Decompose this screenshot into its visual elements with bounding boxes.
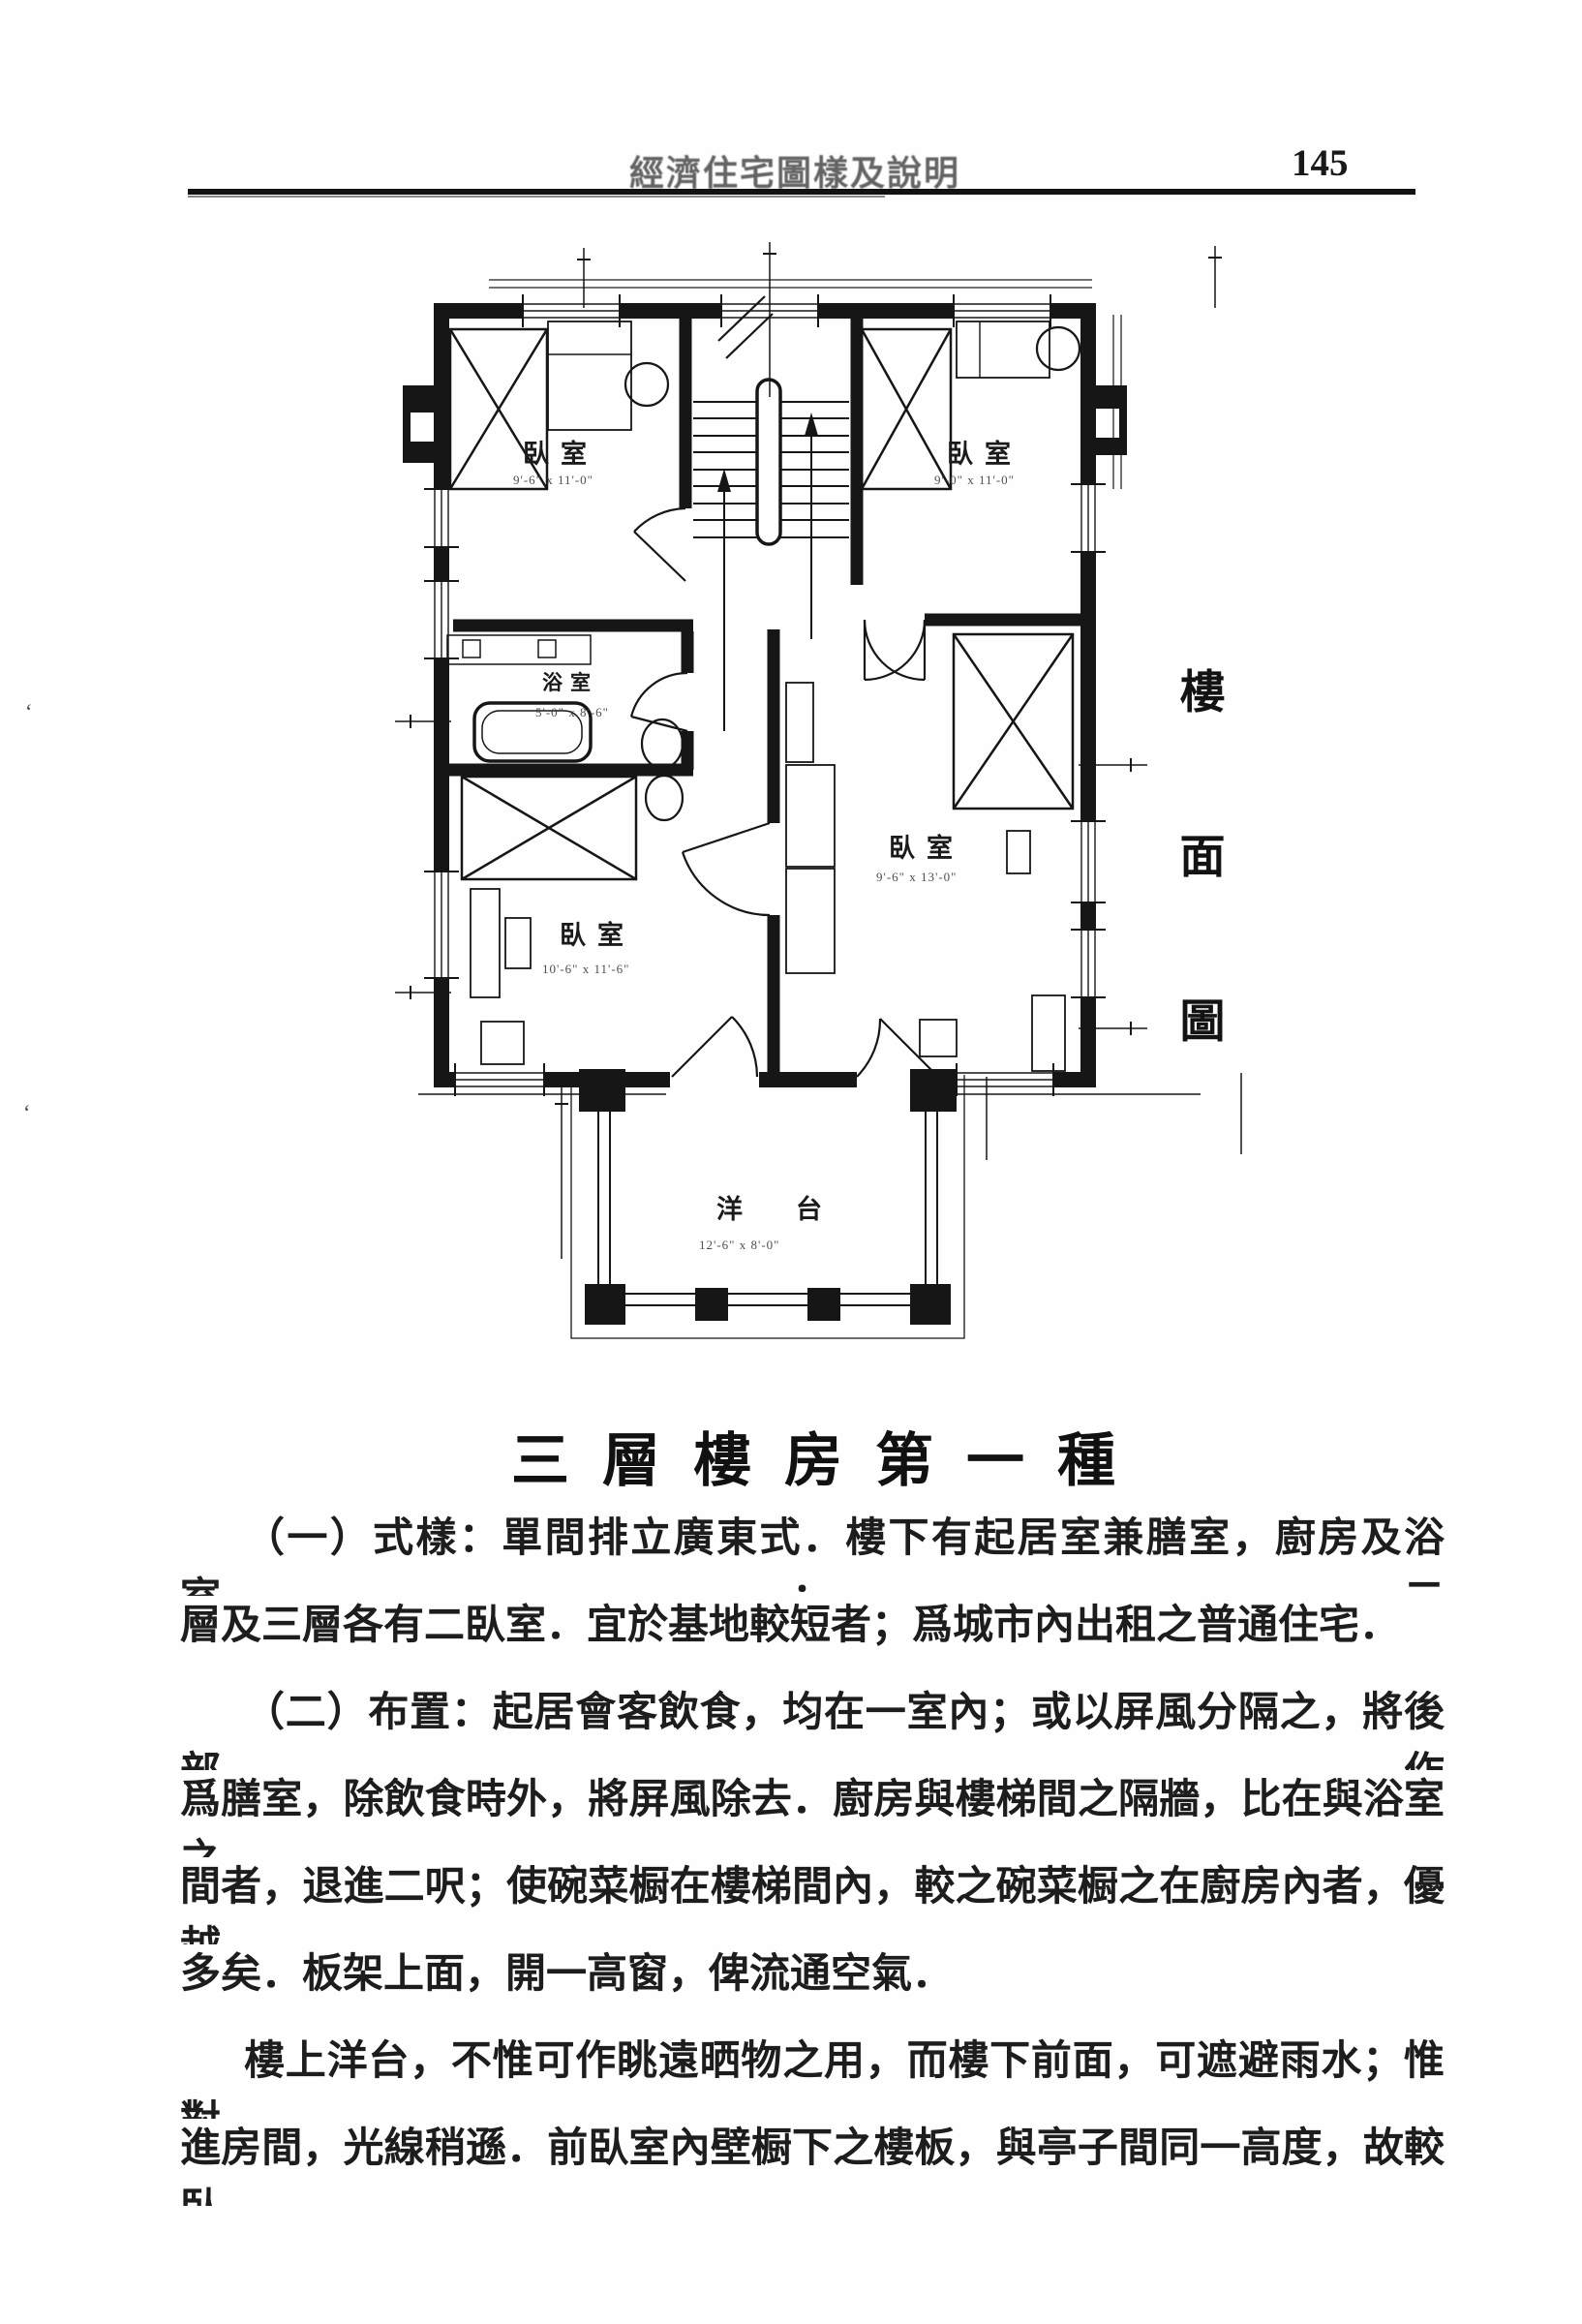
page-number: 145 bbox=[1292, 141, 1349, 185]
room-dim-bedroom-right: 9'-6" x 13'-0" bbox=[876, 870, 957, 884]
room-dim-bathroom: 5'-0" x 8'-6" bbox=[535, 705, 609, 719]
side-caption-char-1: 樓 bbox=[1175, 655, 1230, 721]
eave-lines bbox=[489, 280, 1092, 288]
body-line: 樓上洋台，不惟可作眺遠晒物之用，而樓下前面，可遮避雨水；惟對 bbox=[180, 2032, 1445, 2119]
body-line: 多矣．板架上面，開一高窗，俾流通空氣． bbox=[180, 1944, 1445, 2032]
right-chimney-flue bbox=[1096, 409, 1119, 438]
left-chimney-flue bbox=[411, 413, 434, 442]
body-line: （二）布置：起居會客飲食，均在一室內；或以屏風分隔之，將後部作 bbox=[180, 1683, 1445, 1770]
stair-rail bbox=[757, 380, 780, 544]
side-caption-char-2: 面 bbox=[1175, 819, 1230, 886]
room-label-balcony: 洋台 bbox=[716, 1194, 875, 1224]
room-dim-bedroom-lower-left: 10'-6" x 11'-6" bbox=[542, 962, 629, 976]
room-label-bathroom: 浴室 bbox=[542, 671, 598, 694]
room-label-bedroom-right: 臥室 bbox=[889, 833, 964, 863]
room-label-bedroom-top-left: 臥室 bbox=[523, 439, 598, 469]
body-line: 層及三層各有二臥室．宜於基地較短者；爲城市內出租之普通住宅． bbox=[180, 1596, 1445, 1683]
body-line: （一）式樣：單間排立廣東式．樓下有起居室兼膳室，廚房及浴室；二 bbox=[180, 1509, 1445, 1596]
body-line: 爲膳室，除飲食時外，將屏風除去．廚房與樓梯間之隔牆，比在與浴室之 bbox=[180, 1770, 1445, 1857]
body-paragraphs: （一）式樣：單間排立廣東式．樓下有起居室兼膳室，廚房及浴室；二 層及三層各有二臥… bbox=[180, 1509, 1445, 2206]
bottom-wall-openings bbox=[455, 1063, 1053, 1096]
side-caption-char-3: 圖 bbox=[1175, 984, 1230, 1051]
room-label-bedroom-top-right: 臥室 bbox=[947, 439, 1022, 469]
body-line: 間者，退進二呎；使碗菜橱在樓梯間內，較之碗菜橱之在廚房內者，優越 bbox=[180, 1857, 1445, 1944]
door-arcs bbox=[631, 508, 938, 1077]
section-heading: 三層樓房第一種 bbox=[511, 1414, 1148, 1498]
room-dim-balcony: 12'-6" x 8'-0" bbox=[699, 1238, 779, 1252]
scan-speck: ‘ bbox=[23, 1100, 30, 1125]
room-dim-bedroom-top-left: 9'-6" x 11'-0" bbox=[513, 473, 593, 487]
floor-plan-drawing: 臥室 9'-6" x 11'-0" 臥室 9'-0" x 11'-0" 浴室 5… bbox=[387, 237, 1259, 1361]
room-dim-bedroom-top-right: 9'-0" x 11'-0" bbox=[934, 473, 1015, 487]
header-rule bbox=[188, 189, 1415, 195]
room-label-bedroom-lower-left: 臥室 bbox=[560, 920, 635, 950]
body-line: 進房間，光線稍遜．前臥室內壁橱下之樓板，與亭子間同一高度，故較臥 bbox=[180, 2119, 1445, 2206]
scanned-book-page: 經濟住宅圖樣及說明 145 bbox=[0, 0, 1582, 2324]
scan-speck: ‘ bbox=[25, 699, 32, 724]
header-rule-shadow bbox=[188, 196, 885, 198]
